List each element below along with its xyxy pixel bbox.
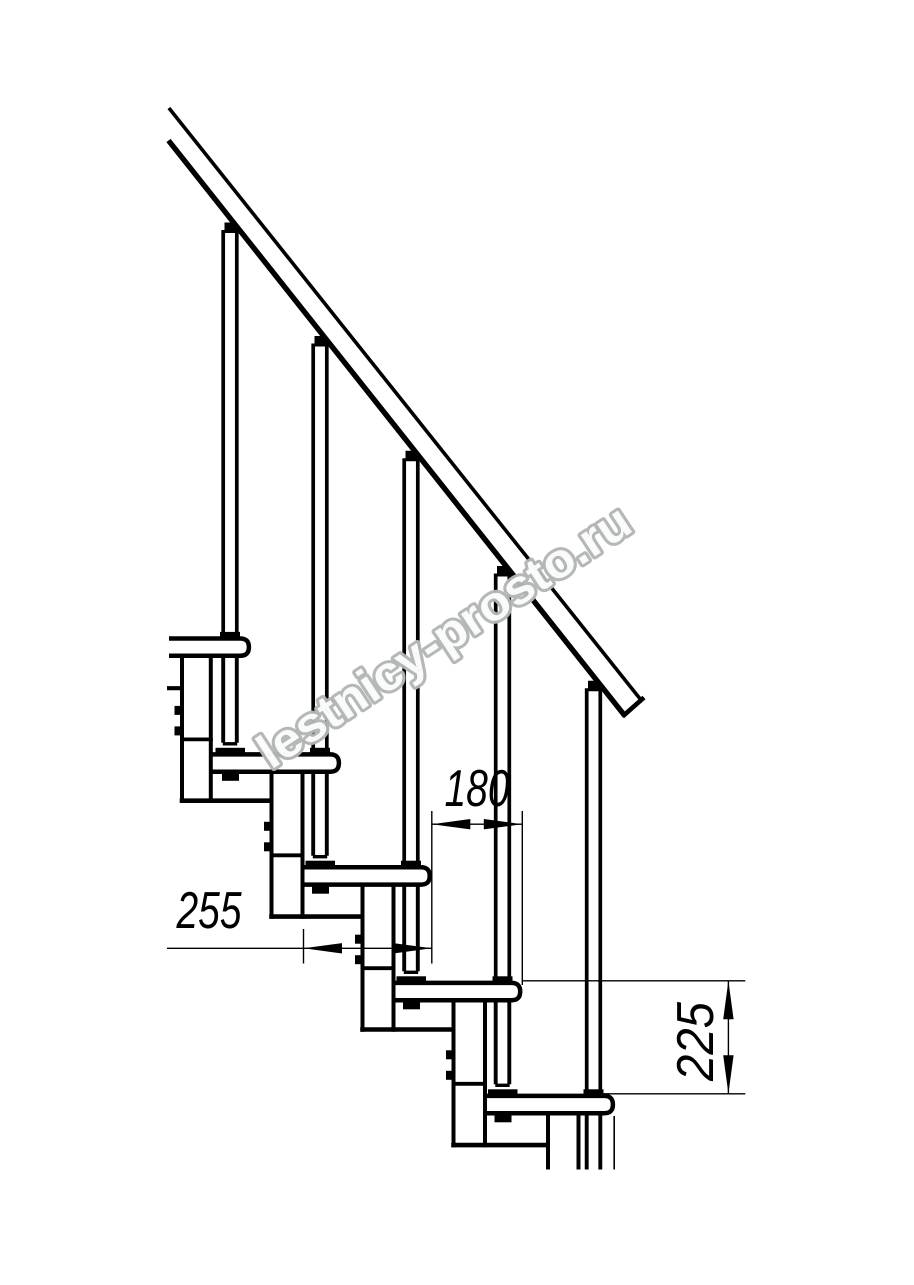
- svg-text:180: 180: [445, 760, 510, 818]
- svg-text:255: 255: [176, 882, 243, 940]
- svg-text:225: 225: [667, 1001, 725, 1082]
